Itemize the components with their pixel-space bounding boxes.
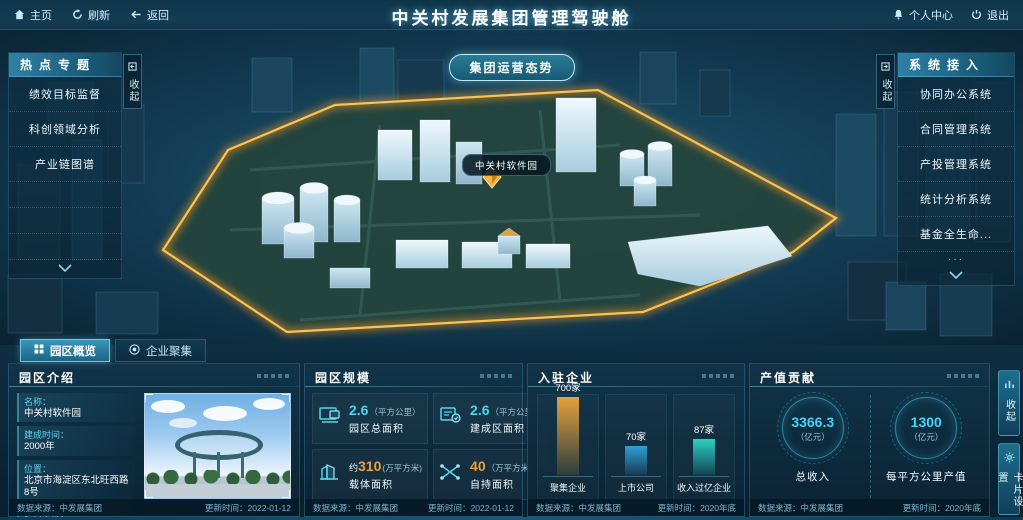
bar bbox=[557, 397, 579, 475]
stat-unit: （平方公里） bbox=[369, 407, 420, 417]
built-area-icon bbox=[439, 405, 463, 432]
gauge-total-revenue: 3366.3 （亿元） 总收入 bbox=[756, 397, 870, 502]
cloud-shape bbox=[169, 418, 197, 428]
dashboard-root: 主页 刷新 返回 中关村发展集团管理驾驶舱 个人中心 bbox=[0, 0, 1023, 520]
field-label: 建成时间： bbox=[24, 428, 130, 441]
card-settings-button[interactable]: 卡片设置 bbox=[998, 443, 1020, 515]
system-item[interactable]: 合同管理系统 bbox=[898, 112, 1014, 147]
target-circle-icon bbox=[129, 344, 140, 358]
data-source: 数据来源：中发展集团 bbox=[536, 502, 621, 514]
gauge-divider bbox=[870, 395, 871, 498]
hot-topic-empty-slot bbox=[9, 234, 121, 260]
field-label: 位置： bbox=[24, 462, 130, 475]
stat-unit: (万平方米) bbox=[382, 463, 422, 473]
gauge-unit: （亿元） bbox=[909, 431, 943, 443]
trees-shape bbox=[145, 470, 290, 484]
collapse-icon bbox=[881, 58, 890, 76]
park-total-area-icon bbox=[318, 405, 342, 432]
collapse-label: 收起 bbox=[1002, 399, 1017, 423]
bar-baseline bbox=[543, 476, 593, 477]
card-title: 园区介绍 bbox=[19, 371, 75, 385]
park-photo bbox=[144, 393, 291, 499]
card-header-deco bbox=[257, 374, 291, 378]
output-value-card: 产值贡献 3366.3 （亿元） 总收入 1300 （亿元） 每平方公里产值 bbox=[749, 363, 990, 517]
system-access-collapse-button[interactable]: 收起 bbox=[876, 54, 895, 109]
system-more-indicator: ··· bbox=[898, 252, 1014, 267]
hot-topics-scroll-down-button[interactable] bbox=[9, 260, 121, 278]
personal-center-label: 个人中心 bbox=[909, 7, 953, 23]
park-scale-card: 园区规模 2.6（平方公里） 园区总面积 2.6（平方公里） bbox=[304, 363, 523, 517]
field-built-time: 建成时间： 2000年 bbox=[17, 426, 135, 455]
gauge-output-per-sqkm: 1300 （亿元） 每平方公里产值 bbox=[870, 397, 984, 502]
cloud-shape bbox=[203, 406, 247, 421]
hot-topics-title: 热点专题 bbox=[9, 53, 121, 77]
refresh-icon bbox=[72, 9, 83, 20]
gauge-ring: 3366.3 （亿元） bbox=[782, 397, 844, 459]
system-item[interactable]: 产投管理系统 bbox=[898, 147, 1014, 182]
back-arrow-icon bbox=[130, 9, 142, 20]
self-held-area-icon bbox=[439, 461, 463, 488]
collapse-label: 收起 bbox=[878, 79, 893, 103]
bar-column-cluster: 700家 聚集企业 bbox=[537, 394, 599, 500]
tab-park-overview[interactable]: 园区概览 bbox=[20, 339, 110, 362]
hot-topic-item[interactable]: 绩效目标监督 bbox=[9, 77, 121, 112]
system-access-title: 系统接入 bbox=[898, 53, 1014, 77]
hot-topics-collapse-button[interactable]: 收起 bbox=[123, 54, 142, 109]
bar-baseline bbox=[611, 476, 661, 477]
card-header-rule bbox=[9, 386, 299, 387]
bell-icon bbox=[893, 9, 904, 20]
refresh-button[interactable]: 刷新 bbox=[72, 7, 110, 23]
photo-corner bbox=[144, 490, 153, 499]
gear-icon bbox=[1004, 450, 1015, 468]
card-header-deco bbox=[702, 374, 736, 378]
hot-topic-item[interactable]: 产业链图谱 bbox=[9, 147, 121, 182]
bar-value-label: 87家 bbox=[674, 422, 734, 436]
tab-enterprise-cluster[interactable]: 企业聚集 bbox=[115, 339, 206, 362]
stat-value: 40 bbox=[470, 458, 486, 474]
field-value: 2000年 bbox=[24, 441, 130, 453]
bottom-tab-bar: 园区概览 企业聚集 bbox=[20, 339, 206, 362]
system-access-panel: 系统接入 收起 协同办公系统 合同管理系统 产投管理系统 统计分析系统 基金全生… bbox=[897, 52, 1015, 286]
update-time: 更新时间：2022-01-12 bbox=[205, 502, 291, 514]
system-item[interactable]: 基金全生命... bbox=[898, 217, 1014, 252]
bar-value-label: 70家 bbox=[606, 429, 666, 443]
bar bbox=[625, 446, 647, 475]
settings-label: 卡片设置 bbox=[994, 472, 1023, 508]
update-time: 更新时间：2022-01-12 bbox=[428, 502, 514, 514]
top-bar: 主页 刷新 返回 中关村发展集团管理驾驶舱 个人中心 bbox=[0, 0, 1023, 30]
bar-column-over-100m: 87家 收入过亿企业 bbox=[673, 394, 735, 500]
resident-enterprises-card: 入驻企业 700家 聚集企业 70家 上市公司 87家 收入过亿企业 bbox=[527, 363, 745, 517]
tab-label: 企业聚集 bbox=[146, 343, 192, 359]
gauge-value: 3366.3 bbox=[791, 414, 834, 430]
field-value: 中关村软件园 bbox=[24, 408, 130, 420]
home-label: 主页 bbox=[30, 7, 52, 23]
update-time: 更新时间：2020年底 bbox=[658, 502, 736, 514]
data-source: 数据来源：中发展集团 bbox=[313, 502, 398, 514]
photo-corner bbox=[282, 393, 291, 402]
gauge-ring: 1300 （亿元） bbox=[895, 397, 957, 459]
photo-corner bbox=[144, 393, 153, 402]
chevron-down-icon bbox=[949, 271, 963, 279]
hot-topic-empty-slot bbox=[9, 208, 121, 234]
data-source: 数据来源：中发展集团 bbox=[17, 502, 102, 514]
card-title: 园区规模 bbox=[315, 371, 371, 385]
ground-shape bbox=[145, 484, 290, 498]
home-icon bbox=[14, 9, 25, 20]
stat-carrier-area: 约310(万平方米) 载体面积 bbox=[312, 449, 428, 500]
collapse-icon bbox=[128, 58, 137, 76]
field-label: 名称： bbox=[24, 395, 130, 408]
card-header-rule bbox=[305, 386, 522, 387]
data-source: 数据来源：中发展集团 bbox=[758, 502, 843, 514]
gauge-label: 每平方公里产值 bbox=[886, 469, 967, 484]
chevron-down-icon bbox=[58, 264, 72, 272]
bar-category-label: 聚集企业 bbox=[538, 481, 598, 494]
hot-topic-item[interactable]: 科创领域分析 bbox=[9, 112, 121, 147]
hot-topics-panel: 热点专题 收起 绩效目标监督 科创领域分析 产业链图谱 bbox=[8, 52, 122, 279]
app-title: 中关村发展集团管理驾驶舱 bbox=[392, 4, 632, 29]
bar-category-label: 上市公司 bbox=[606, 481, 666, 494]
park-introduction-card: 园区介绍 名称： 中关村软件园 建成时间： 2000年 位置： 北京市海淀区东北… bbox=[8, 363, 300, 517]
photo-corner bbox=[282, 490, 291, 499]
bar-chart-icon bbox=[1004, 377, 1015, 395]
gauge-value: 1300 bbox=[911, 414, 942, 430]
field-location: 位置： 北京市海淀区东北旺西路8号 bbox=[17, 460, 135, 502]
logout-button[interactable]: 退出 bbox=[971, 7, 1009, 23]
stat-value: 2.6 bbox=[349, 402, 368, 418]
refresh-label: 刷新 bbox=[88, 7, 110, 23]
logout-label: 退出 bbox=[987, 7, 1009, 23]
update-time: 更新时间：2020年底 bbox=[903, 502, 981, 514]
back-label: 返回 bbox=[147, 7, 169, 23]
home-button[interactable]: 主页 bbox=[14, 7, 52, 23]
stat-prefix: 约 bbox=[349, 463, 358, 473]
card-header-deco bbox=[947, 374, 981, 378]
park-pin-label[interactable]: 中关村软件园 bbox=[462, 154, 551, 176]
bar-category-label: 收入过亿企业 bbox=[674, 481, 734, 494]
stat-park-total-area: 2.6（平方公里） 园区总面积 bbox=[312, 393, 428, 444]
enterprises-bar-chart: 700家 聚集企业 70家 上市公司 87家 收入过亿企业 bbox=[528, 387, 744, 500]
collapse-label: 收起 bbox=[125, 79, 140, 103]
system-item[interactable]: 协同办公系统 bbox=[898, 77, 1014, 112]
hot-topic-empty-slot bbox=[9, 182, 121, 208]
card-header-deco bbox=[480, 374, 514, 378]
system-item[interactable]: 统计分析系统 bbox=[898, 182, 1014, 217]
field-name: 名称： 中关村软件园 bbox=[17, 393, 135, 422]
cloud-shape bbox=[151, 400, 185, 413]
stat-value: 2.6 bbox=[470, 402, 489, 418]
power-icon bbox=[971, 9, 982, 20]
gauge-unit: （亿元） bbox=[796, 431, 830, 443]
bar-value-label: 700家 bbox=[538, 380, 598, 394]
back-button[interactable]: 返回 bbox=[130, 7, 169, 23]
gauge-label: 总收入 bbox=[796, 469, 831, 484]
bar-column-listed: 70家 上市公司 bbox=[605, 394, 667, 500]
personal-center-button[interactable]: 个人中心 bbox=[893, 7, 953, 23]
system-access-scroll-down-button[interactable] bbox=[898, 267, 1014, 285]
bar bbox=[693, 439, 715, 475]
carrier-area-icon bbox=[318, 461, 342, 488]
group-operation-status-button[interactable]: 集团运营态势 bbox=[448, 54, 574, 81]
grid-icon bbox=[34, 344, 44, 357]
tab-label: 园区概览 bbox=[50, 343, 96, 359]
field-value: 北京市海淀区东北旺西路8号 bbox=[24, 475, 130, 500]
cloud-shape bbox=[253, 398, 285, 410]
card-title: 产值贡献 bbox=[760, 371, 816, 385]
map-area: 集团运营态势 中关村软件园 bbox=[0, 30, 1023, 345]
cards-collapse-button[interactable]: 收起 bbox=[998, 370, 1020, 436]
stat-label: 园区总面积 bbox=[349, 420, 420, 435]
stat-value: 310 bbox=[358, 458, 381, 474]
bar-baseline bbox=[679, 476, 729, 477]
stat-label: 载体面积 bbox=[349, 476, 422, 491]
